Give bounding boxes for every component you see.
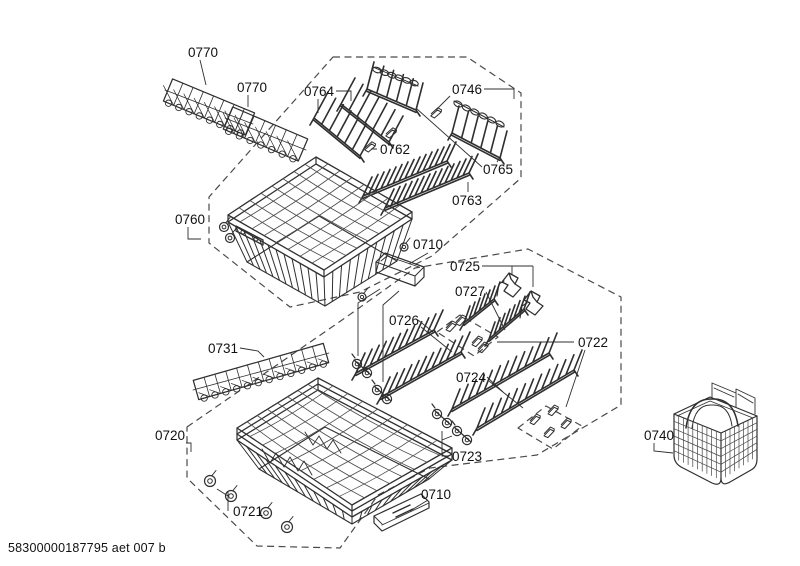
part-label-0762: 0762 [380, 142, 410, 157]
part-label-0731: 0731 [208, 341, 238, 356]
part-label-0722: 0722 [578, 335, 608, 350]
clip [546, 404, 560, 417]
part-label-0746: 0746 [452, 82, 482, 97]
tine-row [363, 62, 423, 116]
part-label-0710-upper: 0710 [413, 237, 443, 252]
part-label-0760: 0760 [175, 212, 205, 227]
part-label-0770-left: 0770 [188, 45, 218, 60]
folding-clip-0725 [502, 273, 543, 315]
scallop-wire [453, 100, 505, 128]
part-label-0723: 0723 [452, 449, 482, 464]
part-label-0727: 0727 [455, 284, 485, 299]
clip [429, 107, 443, 119]
upper-rack-0760 [220, 157, 413, 306]
exploded-parts-diagram: 0770077007640746076207650763076007100725… [0, 0, 800, 566]
part-label-0765: 0765 [483, 162, 513, 177]
part-label-0763: 0763 [452, 193, 482, 208]
fold-rack-0770-right [223, 107, 307, 162]
part-label-0740: 0740 [644, 428, 674, 443]
parts-diagram-page: 0770077007640746076207650763076007100725… [0, 0, 800, 566]
clip [559, 417, 573, 430]
assembly-group-outlines [187, 57, 621, 548]
part-label-0725: 0725 [450, 259, 480, 274]
part-label-0726: 0726 [389, 313, 419, 328]
part-label-0770-right: 0770 [237, 80, 267, 95]
document-code: 58300000187795 aet 007 b [8, 541, 166, 555]
clip [476, 341, 490, 354]
part-label-0720: 0720 [155, 428, 185, 443]
clip [542, 426, 556, 439]
part-label-0710-lower: 0710 [421, 487, 451, 502]
part-label-0724: 0724 [456, 370, 487, 385]
part-label-0721: 0721 [233, 504, 263, 519]
roller-assembly [452, 421, 472, 445]
clip [528, 413, 542, 426]
part-label-0764: 0764 [304, 84, 335, 99]
